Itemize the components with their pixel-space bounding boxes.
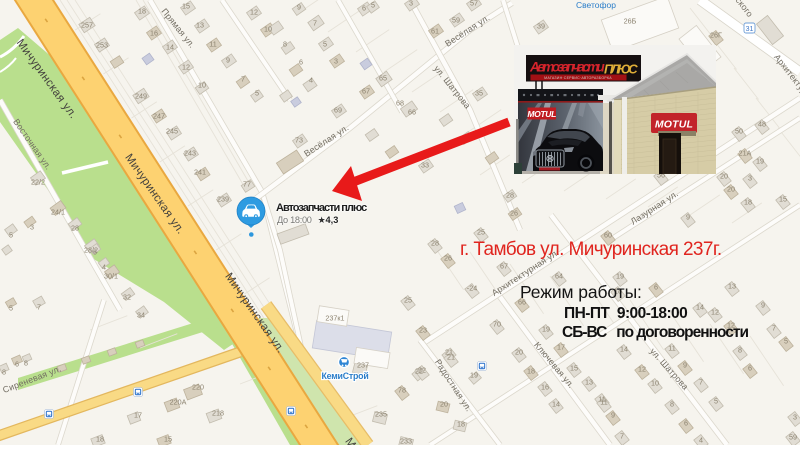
svg-text:МАГАЗИН·СЕРВИС·АВТОРАЗБОРКА: МАГАЗИН·СЕРВИС·АВТОРАЗБОРКА bbox=[544, 76, 612, 80]
svg-text:MOTUL: MOTUL bbox=[655, 119, 693, 131]
svg-text:Автозапчасти: Автозапчасти bbox=[529, 60, 606, 75]
svg-text:MOTUL: MOTUL bbox=[527, 109, 556, 119]
svg-text:ПЛЮС: ПЛЮС bbox=[604, 62, 638, 77]
